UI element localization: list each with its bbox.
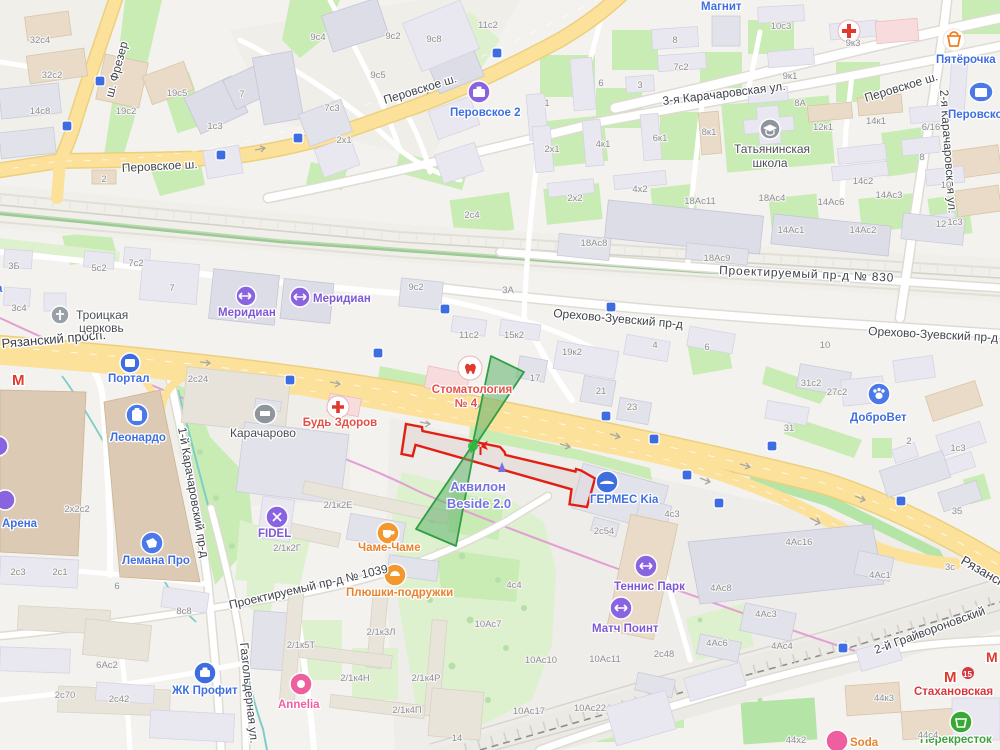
svg-text:3: 3 (637, 80, 642, 91)
svg-text:11с2: 11с2 (478, 20, 498, 31)
svg-text:Меридиан: Меридиан (313, 293, 371, 305)
svg-text:8: 8 (919, 152, 924, 163)
svg-text:ГЕРМЕС Kia: ГЕРМЕС Kia (590, 494, 659, 506)
svg-text:Леонардо: Леонардо (110, 432, 166, 444)
svg-text:2с3: 2с3 (10, 567, 25, 578)
svg-text:FIDEL: FIDEL (258, 528, 291, 540)
svg-text:4с4: 4с4 (506, 580, 521, 591)
svg-text:35: 35 (952, 506, 963, 517)
svg-text:8: 8 (672, 35, 677, 46)
svg-text:18Ас9: 18Ас9 (704, 253, 731, 264)
svg-text:М: М (12, 372, 25, 389)
svg-text:2с54: 2с54 (594, 526, 615, 537)
svg-text:9к1: 9к1 (783, 71, 798, 82)
svg-text:9с2: 9с2 (408, 282, 423, 293)
svg-text:Будь Здоров: Будь Здоров (303, 417, 377, 429)
svg-text:2с70: 2с70 (55, 690, 76, 701)
svg-text:8с8: 8с8 (176, 606, 191, 617)
svg-text:2/1к4Н: 2/1к4Н (340, 673, 370, 684)
svg-text:14Ас3: 14Ас3 (876, 190, 903, 201)
svg-text:9с4: 9с4 (310, 32, 325, 43)
svg-text:8А: 8А (794, 98, 806, 109)
svg-text:ДоброВет: ДоброВет (850, 412, 907, 424)
svg-text:15: 15 (963, 670, 972, 679)
svg-text:18Ас11: 18Ас11 (684, 196, 716, 207)
svg-text:15к2: 15к2 (504, 330, 524, 341)
svg-text:19с5: 19с5 (167, 88, 188, 99)
svg-text:школа: школа (752, 156, 787, 170)
svg-text:14: 14 (452, 733, 463, 744)
svg-text:Татьянинская: Татьянинская (734, 142, 810, 156)
svg-text:4Ас3: 4Ас3 (755, 609, 777, 620)
svg-text:Портал: Портал (108, 373, 150, 385)
svg-text:4Ас8: 4Ас8 (710, 583, 732, 594)
svg-text:Арена: Арена (2, 518, 38, 530)
svg-text:3с4: 3с4 (11, 303, 26, 314)
svg-text:2х1: 2х1 (336, 135, 351, 146)
svg-text:7с2: 7с2 (673, 62, 688, 73)
svg-text:10Ас10: 10Ас10 (525, 655, 557, 666)
svg-text:23: 23 (627, 402, 638, 413)
svg-text:2/1к3Л: 2/1к3Л (367, 627, 396, 638)
svg-text:14с2: 14с2 (853, 176, 874, 187)
svg-text:М: М (944, 669, 957, 686)
svg-text:5с2: 5с2 (91, 263, 106, 274)
svg-text:6Ас2: 6Ас2 (96, 660, 118, 671)
svg-text:Перовское 2: Перовское 2 (450, 107, 521, 119)
svg-text:32с2: 32с2 (42, 70, 63, 81)
svg-text:2с4: 2с4 (464, 210, 479, 221)
svg-text:Теннис Парк: Теннис Парк (614, 581, 685, 593)
svg-text:12: 12 (936, 219, 947, 230)
svg-text:14к1: 14к1 (866, 116, 886, 127)
svg-text:Стоматология: Стоматология (432, 384, 512, 396)
svg-text:9к3: 9к3 (846, 38, 861, 49)
svg-text:4Ас4: 4Ас4 (771, 641, 793, 652)
svg-text:Пятёрочка: Пятёрочка (936, 54, 996, 66)
svg-text:Лемана Про: Лемана Про (122, 555, 190, 567)
svg-text:9с8: 9с8 (426, 34, 441, 45)
svg-text:Чаме-Чаме: Чаме-Чаме (358, 542, 421, 554)
svg-text:2х2с2: 2х2с2 (64, 504, 89, 515)
svg-text:2: 2 (906, 436, 911, 447)
svg-text:Аквилон: Аквилон (450, 479, 506, 494)
svg-text:14с8: 14с8 (30, 106, 51, 117)
svg-text:7с3: 7с3 (324, 103, 339, 114)
svg-text:8к1: 8к1 (702, 127, 717, 138)
svg-text:44с4: 44с4 (918, 730, 939, 741)
svg-text:Меридиан: Меридиан (218, 307, 276, 319)
svg-text:7с2: 7с2 (128, 258, 143, 269)
svg-text:32с4: 32с4 (30, 35, 51, 46)
svg-text:4Ас16: 4Ас16 (786, 537, 813, 548)
svg-text:9с5: 9с5 (370, 70, 385, 81)
svg-text:4к1: 4к1 (596, 139, 611, 150)
svg-text:Annelia: Annelia (278, 699, 320, 711)
svg-text:№ 4: № 4 (455, 398, 478, 410)
svg-text:2/1к5Т: 2/1к5Т (287, 640, 316, 651)
svg-text:2с1: 2с1 (52, 567, 67, 578)
svg-text:10с3: 10с3 (771, 21, 792, 32)
svg-text:Плюшки-подружки: Плюшки-подружки (346, 587, 453, 599)
svg-text:10Ас7: 10Ас7 (475, 619, 502, 630)
svg-text:6: 6 (598, 78, 603, 89)
svg-text:10: 10 (941, 180, 952, 191)
svg-text:7: 7 (169, 283, 174, 294)
svg-text:12к1: 12к1 (813, 122, 833, 133)
svg-text:14Ас1: 14Ас1 (778, 225, 805, 236)
svg-text:4Ас6: 4Ас6 (706, 638, 728, 649)
svg-text:18Ас4: 18Ас4 (759, 193, 786, 204)
svg-text:10Ас22: 10Ас22 (574, 703, 606, 714)
svg-text:Перовское: Перовское (948, 109, 1000, 121)
svg-text:1: 1 (544, 98, 549, 109)
svg-text:11с2: 11с2 (459, 330, 479, 341)
svg-text:2с24: 2с24 (188, 374, 209, 385)
svg-text:церковь: церковь (79, 321, 124, 335)
svg-text:2/1к4Р: 2/1к4Р (412, 673, 441, 684)
svg-text:М: М (986, 649, 998, 665)
svg-text:6: 6 (704, 342, 709, 353)
svg-text:Beside 2.0: Beside 2.0 (447, 496, 511, 511)
svg-text:10Ас17: 10Ас17 (513, 706, 545, 717)
svg-text:3Б: 3Б (8, 261, 20, 272)
svg-text:44х2: 44х2 (786, 735, 807, 746)
svg-text:Троицкая: Троицкая (76, 308, 128, 322)
svg-text:4Ас1: 4Ас1 (869, 570, 891, 581)
svg-text:10Ас11: 10Ас11 (589, 654, 621, 665)
svg-text:Матч Поинт: Матч Поинт (592, 623, 659, 635)
svg-text:3А: 3А (502, 285, 514, 296)
svg-text:1с3: 1с3 (947, 217, 962, 228)
svg-text:31: 31 (784, 423, 795, 434)
svg-text:2: 2 (101, 174, 106, 185)
svg-text:2с42: 2с42 (109, 694, 130, 705)
svg-text:14Ас6: 14Ас6 (818, 197, 845, 208)
svg-text:21: 21 (596, 386, 607, 397)
svg-text:19к2: 19к2 (562, 347, 582, 358)
svg-text:1с3: 1с3 (207, 121, 222, 132)
svg-text:1с3: 1с3 (950, 443, 965, 454)
svg-text:4: 4 (652, 340, 657, 351)
svg-text:2с48: 2с48 (654, 649, 675, 660)
svg-text:31с2: 31с2 (801, 378, 822, 389)
svg-text:Soda: Soda (850, 737, 879, 749)
svg-text:2х1: 2х1 (544, 144, 559, 155)
svg-text:14Ас2: 14Ас2 (850, 225, 877, 236)
svg-text:6к1: 6к1 (653, 133, 668, 144)
svg-text:ЖК Профит: ЖК Профит (171, 685, 238, 697)
svg-text:27с2: 27с2 (827, 387, 848, 398)
svg-text:4х2: 4х2 (632, 184, 647, 195)
svg-text:10: 10 (820, 340, 831, 351)
svg-text:17: 17 (530, 373, 541, 384)
svg-text:2/1к2Е: 2/1к2Е (324, 500, 353, 511)
svg-text:44к3: 44к3 (874, 693, 894, 704)
svg-text:6: 6 (114, 581, 119, 592)
svg-text:7: 7 (239, 89, 244, 100)
svg-text:Магнит: Магнит (701, 1, 742, 13)
svg-text:2/1к4П: 2/1к4П (392, 705, 422, 716)
svg-text:19с2: 19с2 (116, 106, 137, 117)
svg-text:2х2: 2х2 (567, 193, 582, 204)
svg-text:9с2: 9с2 (385, 31, 400, 42)
svg-text:Стахановская: Стахановская (914, 686, 993, 698)
svg-text:3с: 3с (945, 562, 955, 573)
svg-text:4с3: 4с3 (664, 509, 679, 520)
svg-text:2/1к2Г: 2/1к2Г (273, 543, 301, 554)
svg-text:Карачарово: Карачарово (230, 426, 296, 440)
svg-text:6/16: 6/16 (922, 122, 941, 133)
svg-text:18Ас8: 18Ас8 (581, 238, 608, 249)
